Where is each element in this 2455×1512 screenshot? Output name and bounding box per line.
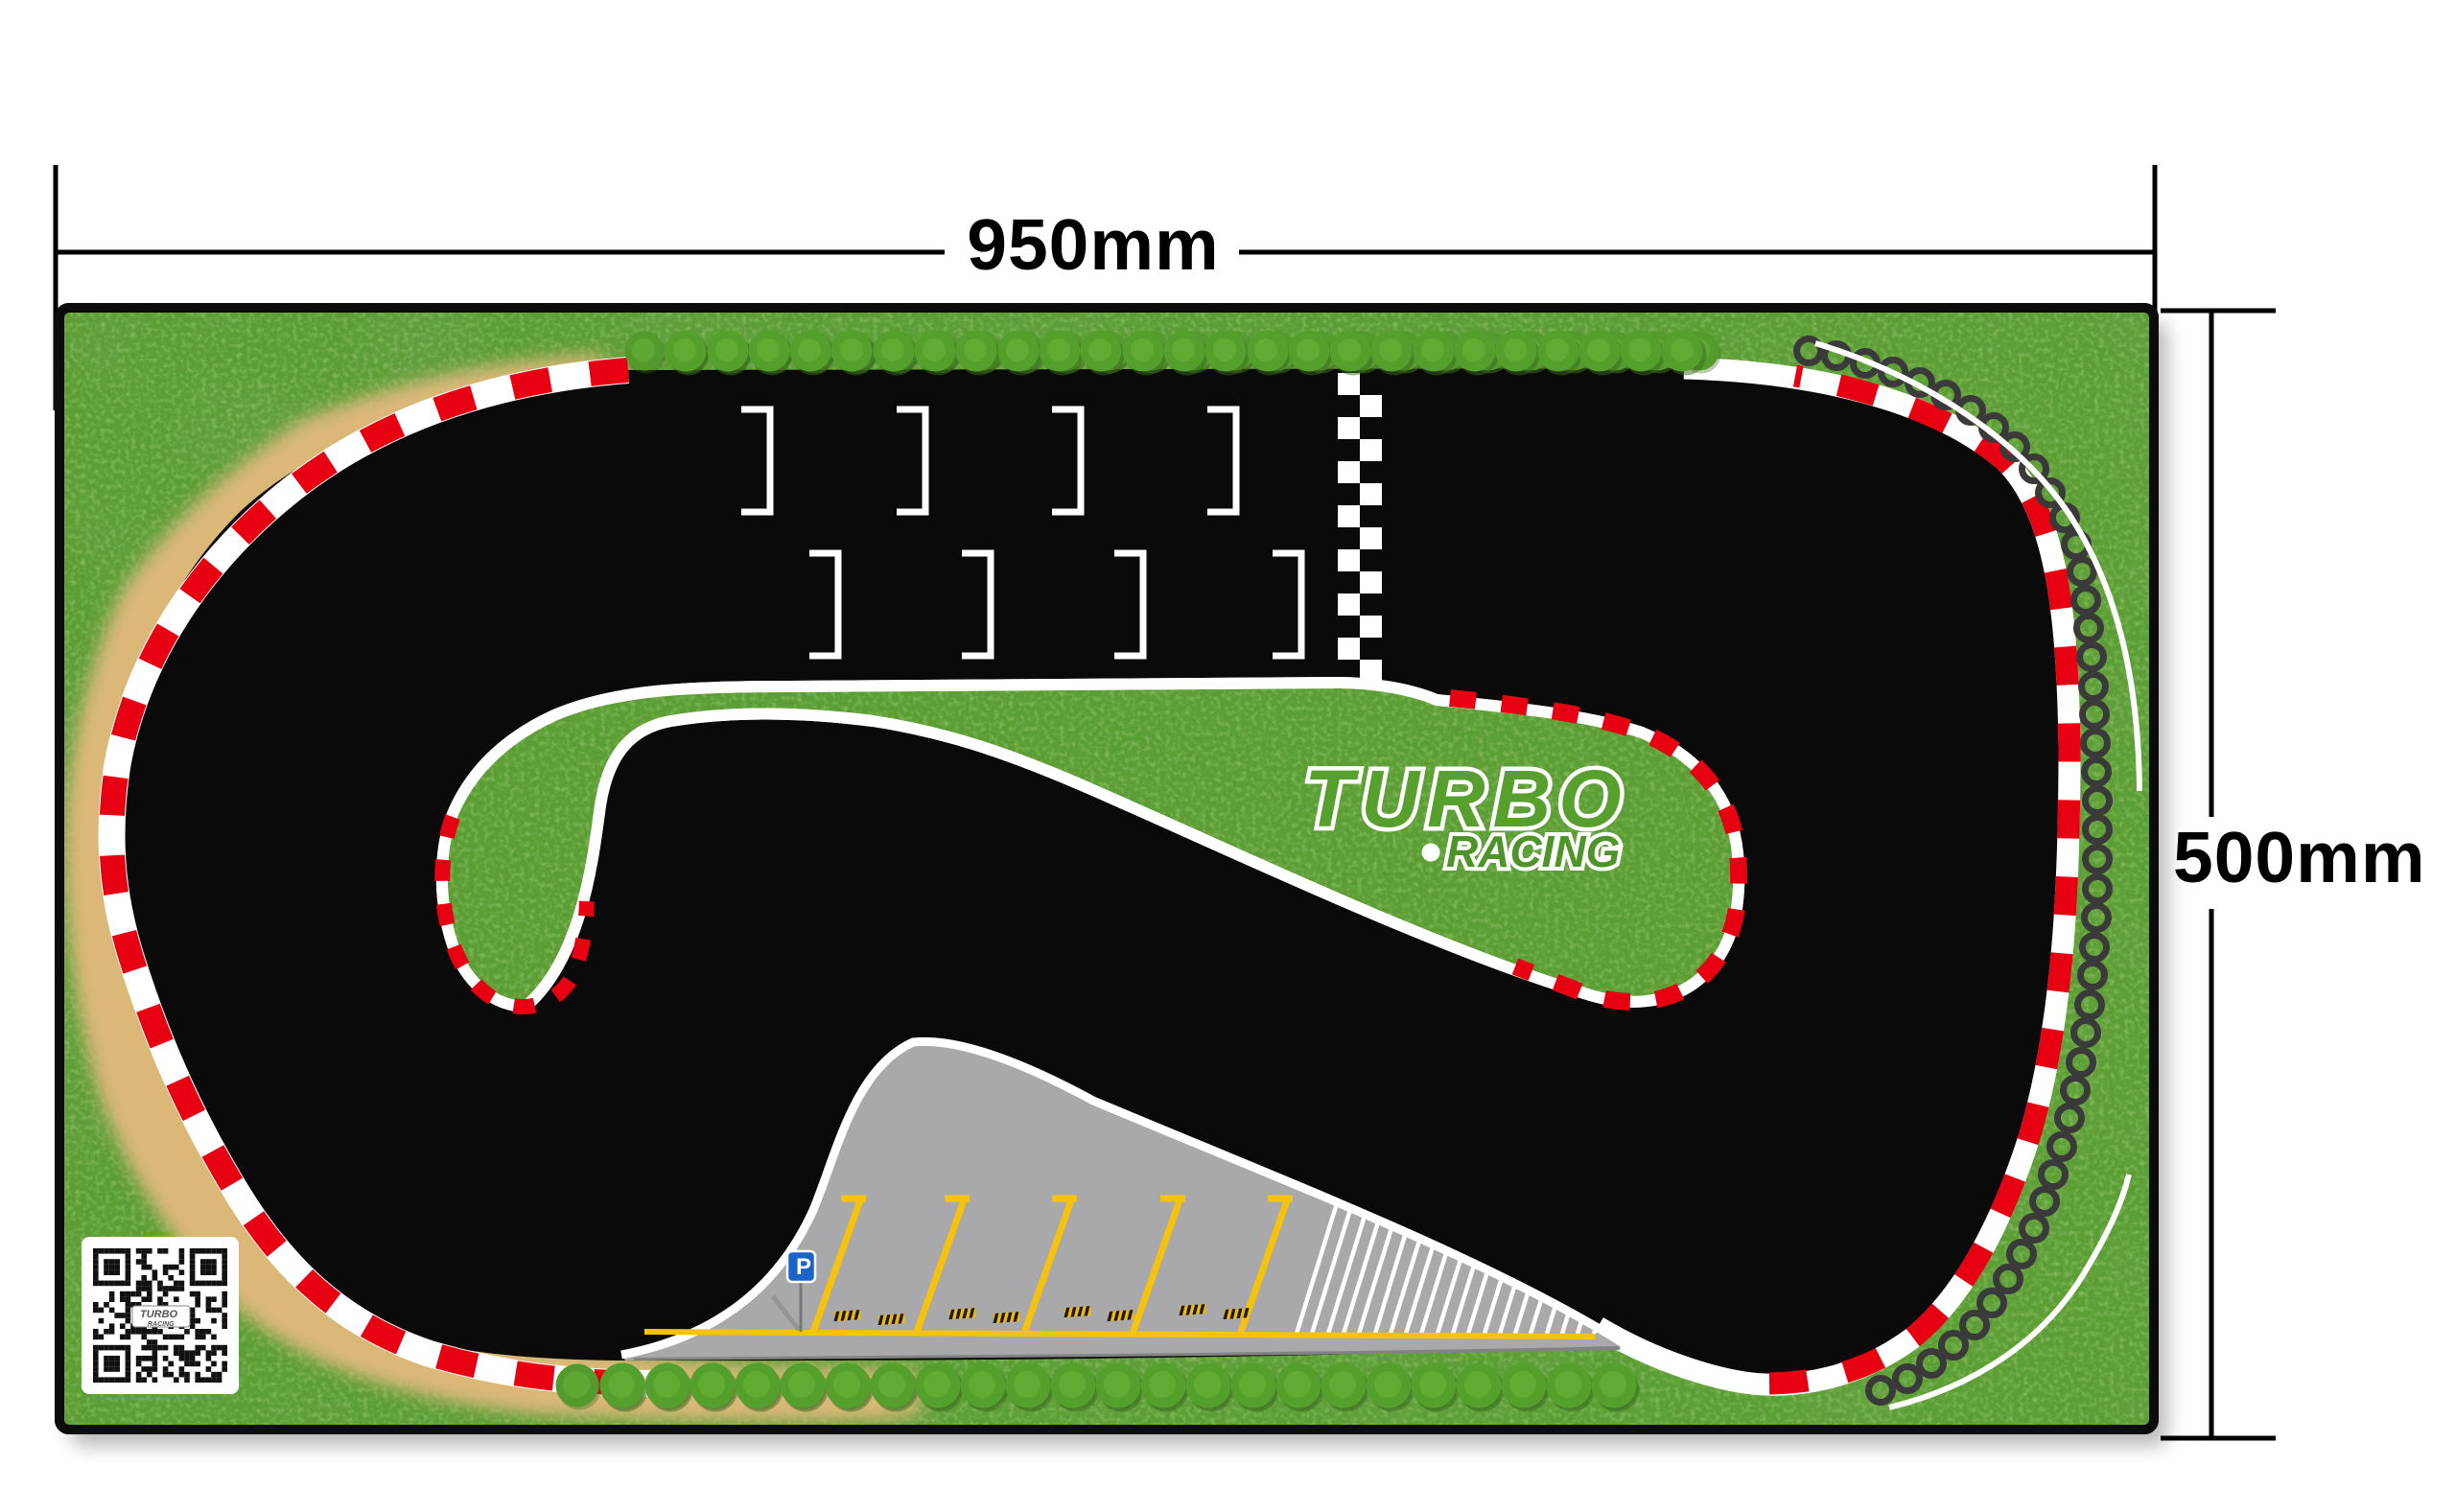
svg-text:RACING: RACING <box>1446 826 1620 876</box>
svg-text:P: P <box>796 1254 811 1280</box>
svg-text:950mm: 950mm <box>967 204 1220 285</box>
svg-text:TURBO: TURBO <box>140 1309 178 1320</box>
svg-text:RACING: RACING <box>148 1321 175 1328</box>
svg-text:500mm: 500mm <box>2173 817 2426 897</box>
